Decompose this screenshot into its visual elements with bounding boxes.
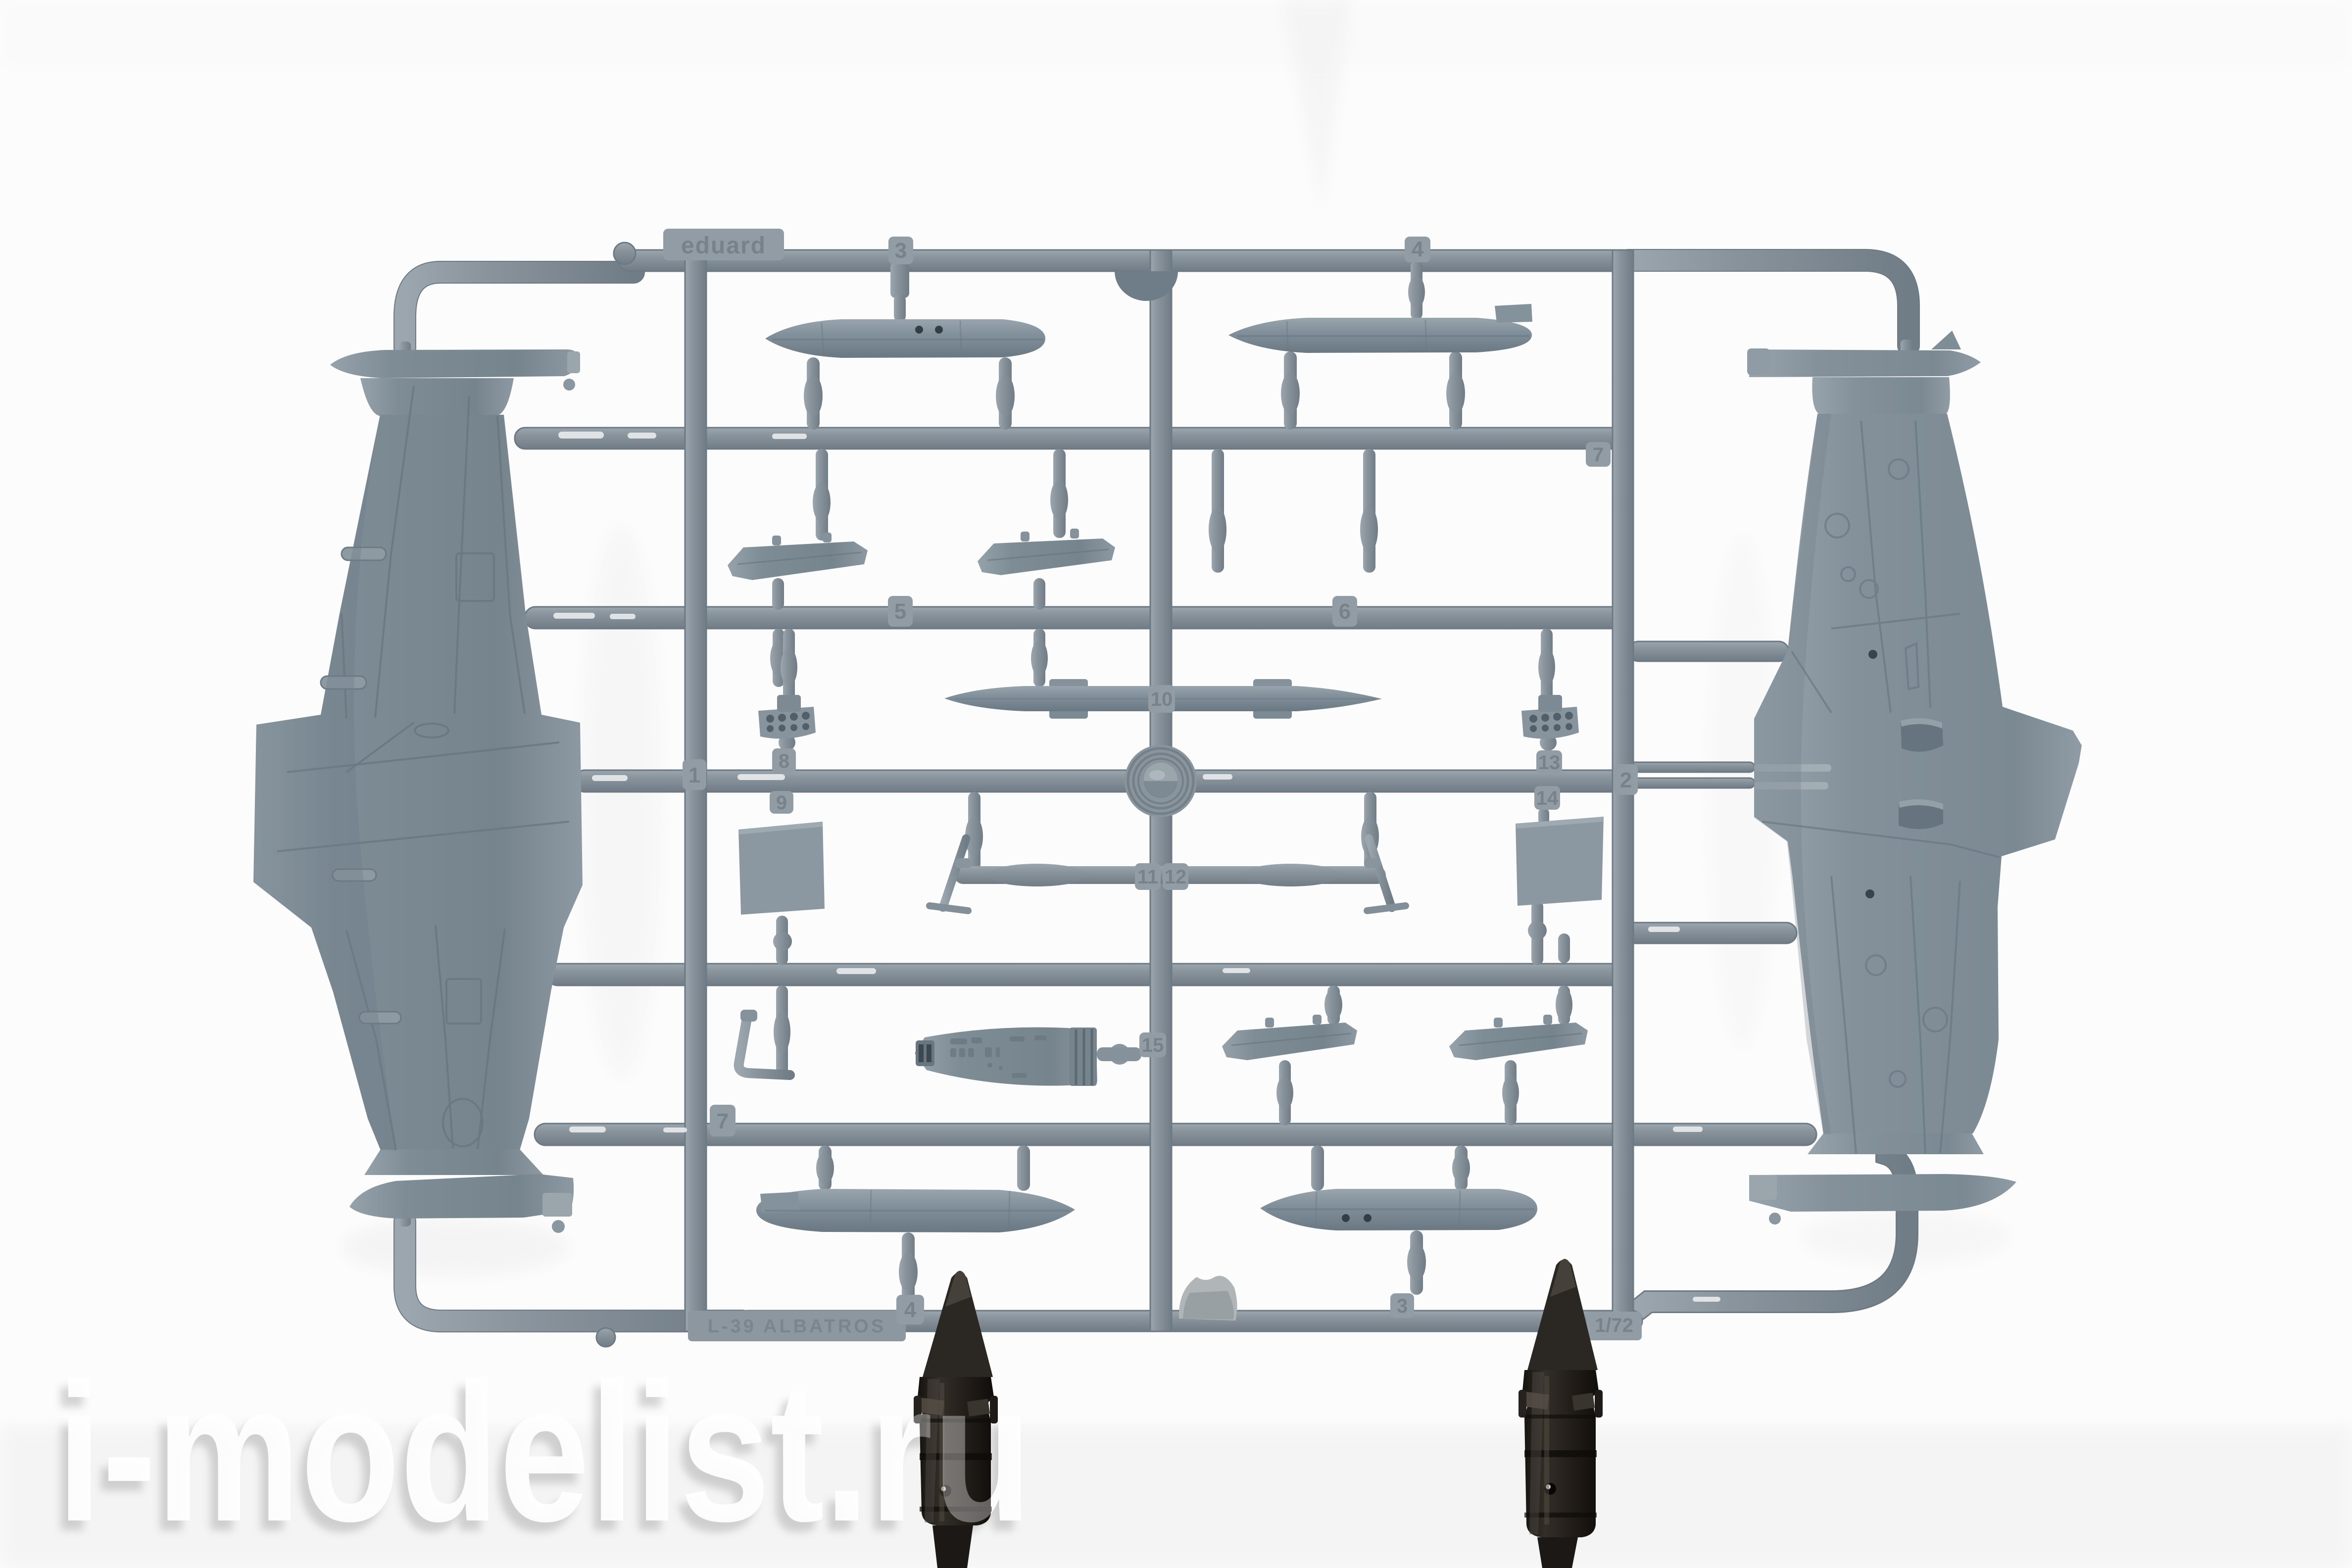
svg-text:13: 13 [1538, 752, 1561, 774]
svg-text:3: 3 [895, 239, 907, 263]
svg-text:1/72: 1/72 [1595, 1315, 1633, 1336]
svg-text:11: 11 [1137, 866, 1158, 888]
svg-text:L-39 ALBATROS: L-39 ALBATROS [708, 1316, 886, 1337]
svg-text:3: 3 [1397, 1295, 1408, 1317]
svg-text:1: 1 [688, 763, 700, 787]
svg-text:6: 6 [1339, 599, 1351, 624]
svg-text:8: 8 [779, 750, 789, 772]
svg-text:4: 4 [904, 1298, 917, 1322]
svg-text:eduard: eduard [681, 233, 766, 259]
svg-text:2: 2 [1620, 768, 1632, 792]
svg-text:9: 9 [776, 792, 787, 814]
svg-text:7: 7 [717, 1109, 729, 1133]
svg-text:12: 12 [1165, 866, 1187, 888]
svg-text:4: 4 [1412, 237, 1424, 261]
svg-text:5: 5 [894, 599, 906, 624]
svg-text:7: 7 [1593, 444, 1604, 466]
svg-text:14: 14 [1536, 787, 1559, 809]
svg-text:15: 15 [1142, 1034, 1164, 1056]
svg-text:i-modelist.ru: i-modelist.ru [57, 1341, 1032, 1563]
svg-text:10: 10 [1151, 688, 1173, 710]
